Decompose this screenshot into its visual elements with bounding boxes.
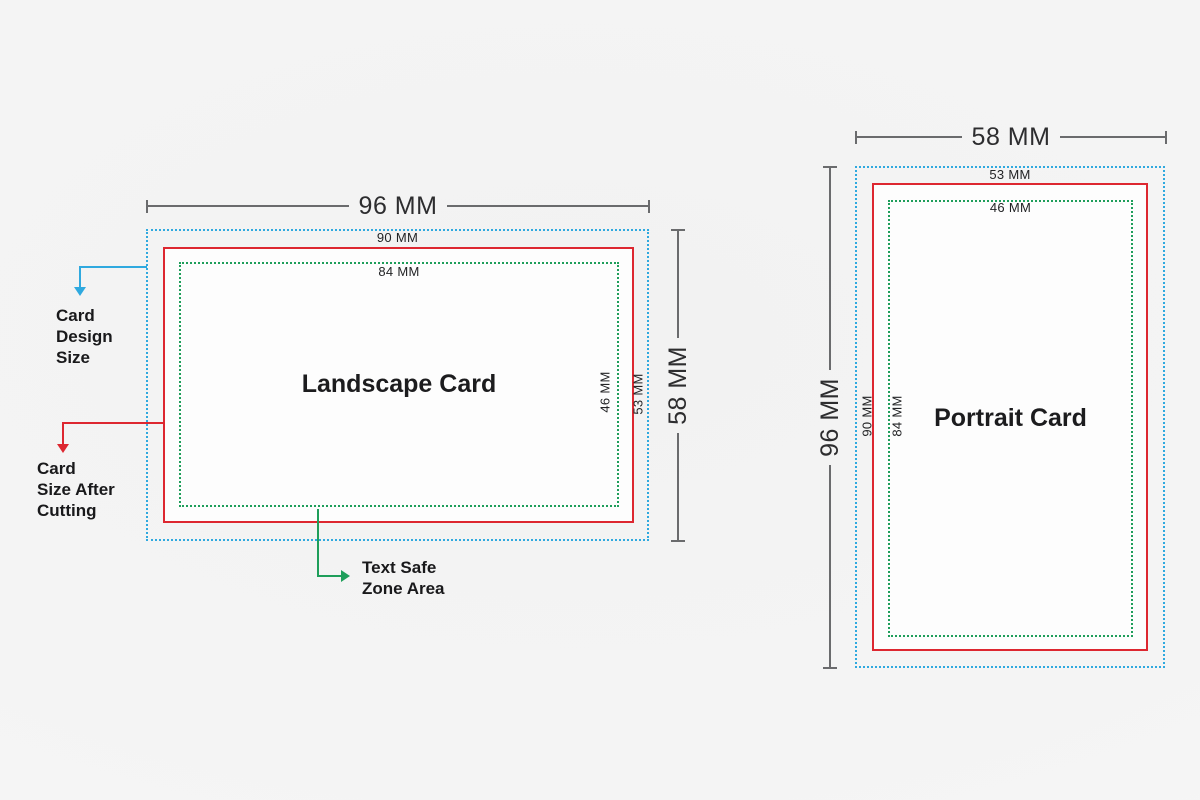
dimension-line (677, 433, 679, 540)
portrait-cut-height-label: 90 MM (860, 395, 875, 436)
design-size-label: Card Design Size (56, 305, 113, 368)
design-pointer-line (79, 266, 147, 268)
dimension-line (1060, 136, 1165, 138)
design-size-label-line: Card (56, 305, 113, 326)
dimension-tick (671, 540, 685, 542)
portrait-height-value: 96 MM (816, 378, 845, 457)
cut-pointer-line (62, 422, 165, 424)
landscape-cut-height-label: 53 MM (631, 373, 646, 414)
landscape-safe-area: Landscape Card (179, 262, 619, 507)
landscape-height-dimension: 58 MM (671, 229, 685, 542)
dimension-line (829, 168, 831, 370)
card-size-specification-diagram: 96 MM 58 MM Landscape Card 90 MM 84 MM 4… (0, 0, 1200, 800)
portrait-card-title: Portrait Card (934, 404, 1087, 433)
cut-size-label-line: Size After (37, 479, 115, 500)
portrait-height-dimension: 96 MM (823, 166, 837, 669)
safe-zone-label: Text Safe Zone Area (362, 557, 445, 599)
portrait-safe-width-label: 46 MM (888, 200, 1133, 215)
arrow-down-icon (57, 444, 69, 453)
landscape-safe-height-label: 46 MM (598, 371, 613, 412)
arrow-down-icon (74, 287, 86, 296)
portrait-safe-height-label: 84 MM (890, 395, 905, 436)
safe-pointer-line (317, 575, 342, 577)
safe-zone-label-line: Text Safe (362, 557, 445, 578)
cut-size-label-line: Card (37, 458, 115, 479)
landscape-height-value: 58 MM (664, 346, 693, 425)
safe-pointer-line (317, 509, 319, 577)
dimension-line (148, 205, 349, 207)
safe-zone-label-line: Zone Area (362, 578, 445, 599)
portrait-safe-area: Portrait Card (888, 200, 1133, 637)
portrait-width-value: 58 MM (972, 123, 1051, 152)
dimension-line (447, 205, 648, 207)
dimension-tick (823, 667, 837, 669)
landscape-cut-width-label: 90 MM (146, 230, 649, 245)
landscape-width-dimension: 96 MM (146, 192, 650, 220)
portrait-cut-width-label: 53 MM (855, 167, 1165, 182)
design-pointer-line (79, 266, 81, 288)
landscape-card-title: Landscape Card (302, 370, 497, 399)
arrow-right-icon (341, 570, 350, 582)
cut-size-label: Card Size After Cutting (37, 458, 115, 521)
dimension-tick (1165, 131, 1167, 144)
dimension-line (857, 136, 962, 138)
landscape-safe-width-label: 84 MM (179, 264, 619, 279)
design-size-label-line: Size (56, 347, 113, 368)
dimension-tick (648, 200, 650, 213)
landscape-width-value: 96 MM (359, 192, 438, 221)
cut-pointer-line (62, 422, 64, 445)
portrait-width-dimension: 58 MM (855, 123, 1167, 151)
design-size-label-line: Design (56, 326, 113, 347)
dimension-line (677, 231, 679, 338)
cut-size-label-line: Cutting (37, 500, 115, 521)
dimension-line (829, 465, 831, 667)
